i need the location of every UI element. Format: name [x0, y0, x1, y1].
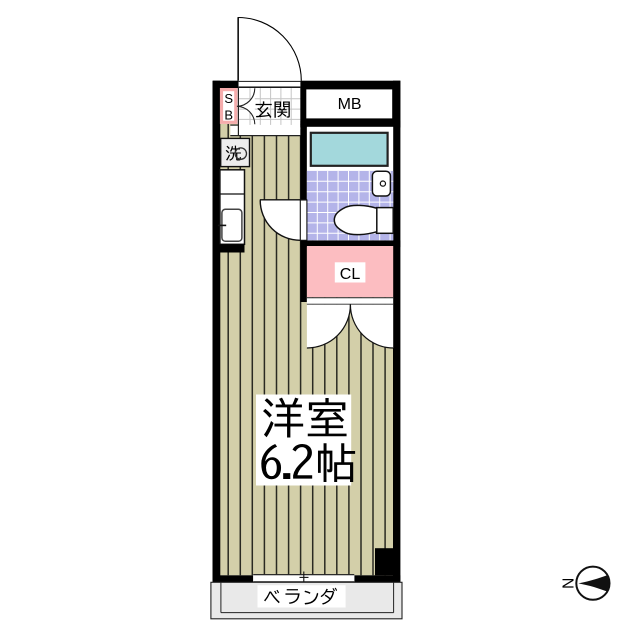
svg-text:B: B: [224, 107, 233, 122]
svg-text:N: N: [561, 578, 578, 589]
svg-text:MB: MB: [338, 96, 362, 113]
svg-text:CL: CL: [340, 266, 361, 283]
svg-text:S: S: [224, 91, 233, 106]
